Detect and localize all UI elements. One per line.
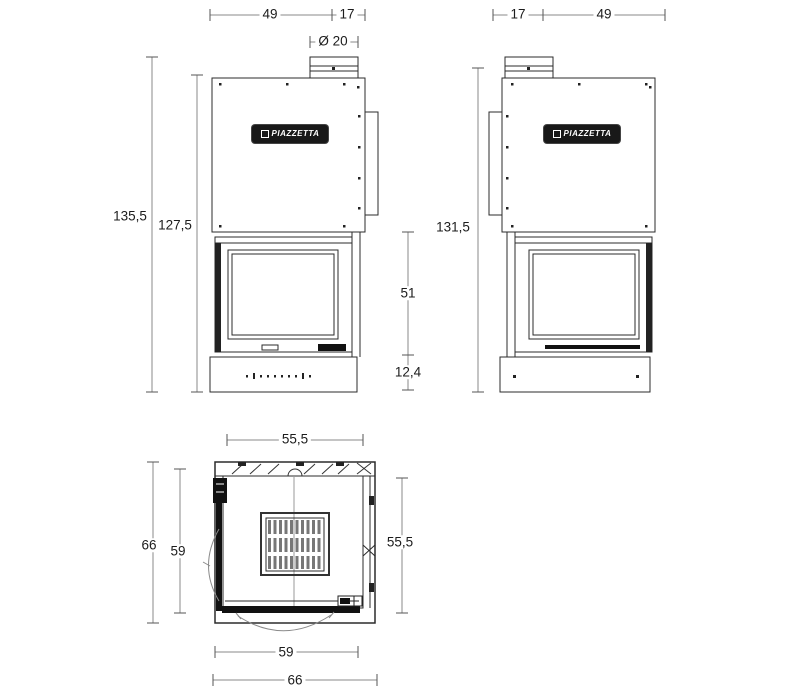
front-base-vents	[246, 373, 311, 379]
brand-logo-plate-side: PIAZZETTA	[544, 125, 620, 143]
dim-side-total-height: 131,5	[436, 220, 470, 234]
dim-front-body-height: 127,5	[158, 218, 192, 232]
brand-logo-mark-icon	[553, 130, 561, 138]
front-flue-collar	[310, 57, 358, 78]
dim-front-base-height: 12,4	[392, 365, 424, 379]
dim-front-flue-diameter: Ø 20	[315, 34, 350, 48]
front-base	[210, 357, 357, 392]
side-flue-collar	[505, 57, 553, 78]
side-upper-panel	[502, 78, 655, 232]
side-firebox-door	[507, 232, 652, 357]
dim-plan-width-inner-bottom: 59	[275, 645, 296, 659]
brand-logo-text: PIAZZETTA	[272, 130, 320, 138]
brand-logo-plate-front: PIAZZETTA	[252, 125, 328, 143]
dim-side-top-flue-offset: 17	[507, 7, 528, 21]
plan-top-hatch	[232, 462, 371, 476]
dim-front-top-width: 49	[259, 7, 280, 21]
dim-front-firebox-height: 51	[397, 286, 418, 300]
dim-front-top-flue-offset: 17	[336, 7, 357, 21]
drawing-linework	[0, 0, 800, 700]
fireplace-technical-drawing: 49 17 Ø 20 135,5 127,5 51 12,4 17 49 131…	[0, 0, 800, 700]
brand-logo-text: PIAZZETTA	[564, 130, 612, 138]
front-door-handle	[262, 345, 278, 350]
front-upper-panel	[212, 78, 365, 232]
side-screws	[506, 83, 652, 228]
side-side-bracket	[489, 112, 502, 215]
plan-right-band-marks	[363, 496, 375, 592]
front-view	[146, 9, 414, 392]
dim-plan-width-outer-bottom: 66	[284, 673, 305, 687]
brand-logo-mark-icon	[261, 130, 269, 138]
side-base	[500, 357, 650, 392]
dim-plan-depth-right: 55,5	[384, 535, 416, 549]
dim-side-top-width: 49	[593, 7, 614, 21]
front-side-bracket	[365, 112, 378, 215]
side-view	[472, 9, 665, 392]
dim-plan-top-width: 55,5	[279, 432, 311, 446]
plan-grate	[261, 513, 329, 575]
front-firebox-door	[215, 232, 360, 357]
front-screws	[219, 83, 361, 228]
dim-front-total-height: 135,5	[113, 209, 147, 223]
dim-plan-depth-outer-left: 66	[138, 538, 159, 552]
dim-plan-depth-inner-left: 59	[167, 544, 188, 558]
